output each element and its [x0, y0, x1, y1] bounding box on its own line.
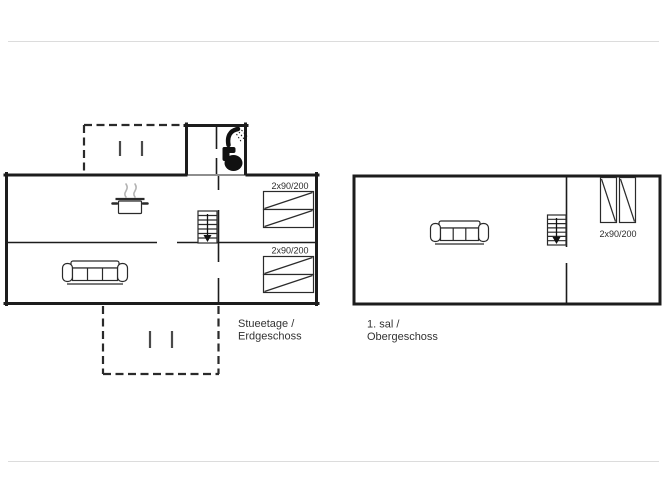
upper-floor-caption-line2: Obergeschoss	[367, 331, 438, 343]
stairs-down-icon	[198, 211, 217, 243]
floorplan-image: 2x90/200 2x90/200 Stueetage / Erdgeschos…	[0, 0, 667, 500]
bed-pair-icon	[601, 178, 636, 223]
bed-pair-icon	[264, 257, 314, 293]
ground-floor-plan: 2x90/200 2x90/200 Stueetage / Erdgeschos…	[5, 124, 318, 374]
upper-floor-plan: 2x90/200 1. sal / Obergeschoss	[354, 176, 660, 343]
floorplan-drawing: 2x90/200 2x90/200 Stueetage / Erdgeschos…	[0, 0, 667, 500]
bathroom	[185, 124, 248, 174]
bed-pair-icon	[264, 192, 314, 228]
upper-floor-caption-line1: 1. sal /	[367, 319, 400, 331]
ground-floor-caption-line1: Stueetage /	[238, 318, 295, 330]
stairs-down-icon	[548, 215, 567, 245]
bed-size-label: 2x90/200	[599, 229, 636, 239]
stove-pot-icon	[113, 184, 148, 214]
bed-size-label: 2x90/200	[271, 246, 308, 256]
toilet-icon	[223, 147, 243, 171]
top-terrace-dashed-outline	[84, 125, 186, 174]
ground-floor-caption-line2: Erdgeschoss	[238, 331, 302, 343]
sofa-icon	[431, 221, 489, 244]
bed-size-label: 2x90/200	[271, 181, 308, 191]
bottom-terrace-dashed-outline	[103, 306, 219, 374]
sofa-icon	[63, 261, 128, 284]
